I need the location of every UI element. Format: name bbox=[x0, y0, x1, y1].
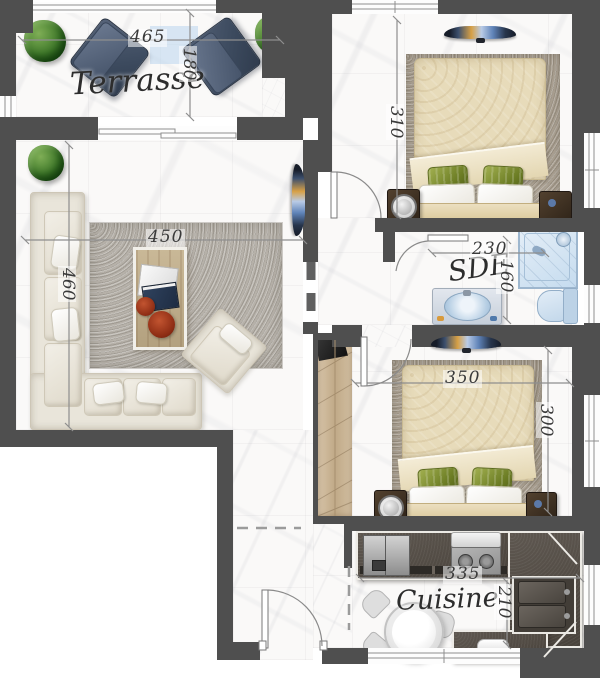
apartment-floor-plan: Terrasse 465 180 450 460 310 SDE 230 160… bbox=[0, 0, 600, 678]
glazing-window bbox=[5, 96, 11, 117]
door-leaf-entry bbox=[262, 590, 268, 648]
dim-bedroom-bottom-depth: 300 bbox=[536, 402, 554, 438]
cuisine-label: Cuisine bbox=[396, 584, 499, 615]
dim-sde-width: 230 bbox=[470, 241, 509, 259]
glazing-window bbox=[352, 1, 438, 13]
glazing-window bbox=[585, 133, 599, 208]
door-arc-entry bbox=[268, 590, 322, 646]
door-arc-bedroom-top bbox=[337, 172, 381, 218]
door-leaf-sde bbox=[428, 235, 468, 241]
door-arc-sde bbox=[396, 241, 428, 271]
door-frame-post bbox=[259, 641, 266, 650]
dim-bedroom-bottom-width: 350 bbox=[443, 370, 482, 388]
dim-terrasse-width: 465 bbox=[128, 29, 167, 47]
glazing-window bbox=[589, 285, 594, 323]
glazing-terrasse-railing bbox=[33, 5, 216, 10]
plan-linework bbox=[0, 0, 600, 678]
dim-living-width: 450 bbox=[146, 229, 185, 247]
dim-terrasse-depth: 180 bbox=[179, 46, 197, 82]
dim-kitchen-depth: 210 bbox=[494, 584, 512, 620]
sliding-panel bbox=[161, 133, 236, 138]
dim-living-depth: 460 bbox=[58, 266, 76, 302]
door-frame-post bbox=[320, 641, 327, 650]
dim-kitchen-width: 335 bbox=[443, 566, 482, 584]
counter-chamfer bbox=[548, 532, 577, 564]
glazing-window bbox=[368, 649, 520, 663]
dim-sde-depth: 160 bbox=[496, 258, 514, 294]
counter-chamfer bbox=[544, 622, 576, 657]
door-leaf-bedroom-top bbox=[331, 172, 337, 218]
glazing-window bbox=[585, 395, 599, 487]
door-leaf-bedroom-bottom bbox=[361, 337, 367, 386]
glazing-window bbox=[589, 565, 594, 625]
dim-bedroom-top-depth: 310 bbox=[386, 104, 404, 140]
door-arc-bedroom-bottom bbox=[364, 339, 411, 386]
